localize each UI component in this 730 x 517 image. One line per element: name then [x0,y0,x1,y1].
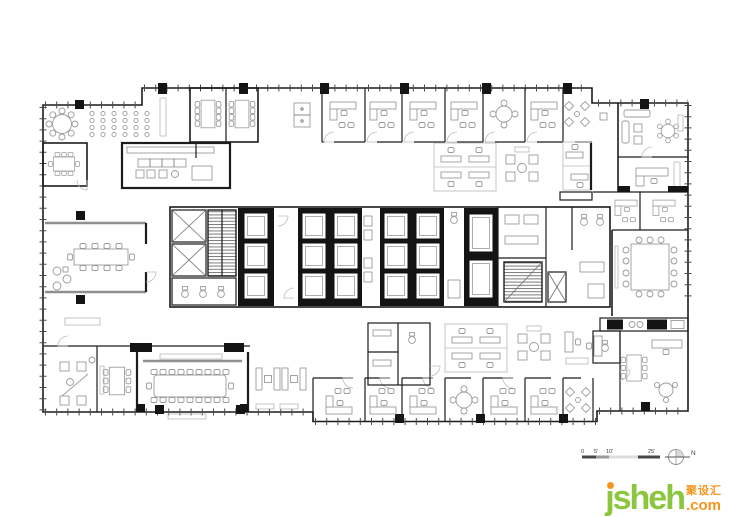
wing-lower-rooms [593,331,682,411]
open-desks [565,332,602,364]
conference-table-left [68,244,135,271]
scale-label-25: 25' [648,449,655,455]
scale-bar: 0 5' 10' 25' [581,449,660,459]
lounge-area [506,147,538,181]
back-to-back-desks [563,142,591,190]
watermark-suffix: .com [686,498,722,513]
meeting-room-topleft [43,143,87,190]
right-wing [593,103,688,411]
desk-cluster [445,324,507,372]
service-shafts [172,210,206,276]
lounge-diamond-chairs [564,101,589,126]
watermark-brand: jsheh [605,485,684,512]
office-desk [531,102,557,128]
elevator-bank-1 [238,208,274,306]
meeting-round-table [450,386,478,414]
wing-meeting-table [621,355,647,381]
office-desk [330,102,356,128]
elevator-bank-4 [464,208,498,306]
door-arc [77,180,87,190]
core-restroom-west [172,278,236,305]
wing-office [636,162,680,190]
watermark-brand-text: jsheh [605,479,684,517]
conference-table-b [229,100,255,128]
cafe-stool-tables [90,111,149,136]
stairwell-b [504,262,542,302]
elevator-bank-3 [380,208,444,306]
door-arc [278,216,288,226]
lounge-pods [256,368,306,409]
copy-cabinet [294,103,310,127]
conference-table-a [195,100,221,128]
office-desk [491,389,517,415]
elevator-bank-2 [298,208,362,306]
desk-cluster [434,143,496,191]
boardroom-table [147,370,234,403]
meeting-table-small [103,367,131,395]
wing-conference-room [612,230,677,316]
meeting-table [48,153,79,176]
stairwell-a [208,210,236,276]
floor-plan: 0 5' 10' 25' N [0,0,730,515]
lounge-area [518,326,550,360]
core-lobby [448,213,460,298]
north-label: N [691,450,696,457]
wing-lounge [600,110,683,144]
left-conference-room [45,223,156,292]
office-desk [531,389,557,415]
open-center [368,323,602,385]
boardroom [130,343,248,419]
door-arc [284,288,294,298]
scale-label-5: 5' [594,449,598,455]
conference-room-a [190,88,258,142]
open-workstations-top [434,142,592,200]
phone-rooms [368,323,440,385]
office-desk [370,102,396,128]
small-offices-mid [560,192,592,200]
meeting-round-table [490,100,518,128]
office-desk [326,389,352,415]
watermark-chinese: 聚设汇 [686,486,722,497]
scale-label-10: 10' [606,449,613,455]
office-desk [410,389,436,415]
wing-kitchen-counter [600,318,688,331]
floor-plan-page: { "meta": { "type": "architectural-floor… [0,0,730,515]
watermark: jsheh 聚设汇 .com [605,485,722,513]
lounge-diamond-chairs [565,387,590,412]
meeting-room-bottomleft [100,346,137,412]
north-arrow: N [665,450,696,465]
cafe-counter [160,98,166,136]
bottom-office-row [313,378,593,421]
top-office-row [322,88,592,142]
office-desk [410,102,436,128]
service-core [170,207,610,307]
office-desk [370,389,396,415]
lounge-corner [53,267,71,290]
credenza [65,318,100,325]
core-restroom-east [548,207,604,302]
kitchen [122,143,230,188]
office-desk [451,102,477,128]
core-vestibule [364,216,372,282]
cafe-round-table [46,108,78,140]
scale-label-0: 0 [581,449,584,455]
wing-meeting-offices [612,192,688,230]
wing-round-table [654,382,677,402]
